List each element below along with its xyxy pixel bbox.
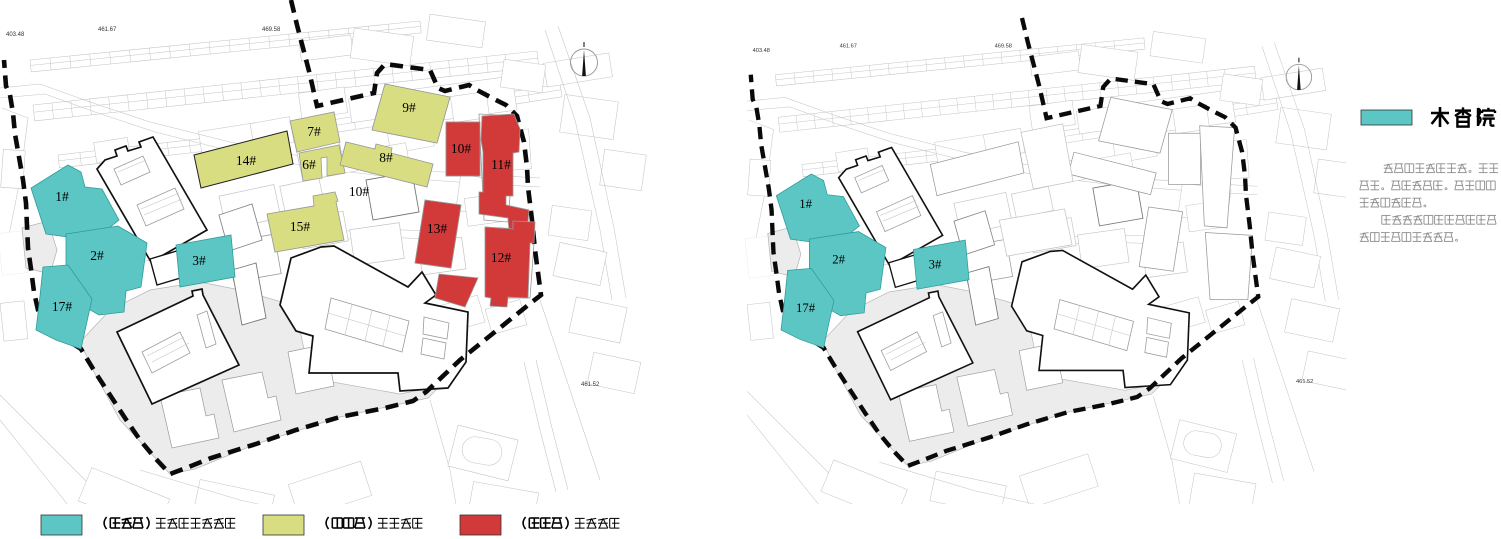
svg-text:461.52: 461.52 (1296, 379, 1313, 385)
svg-text:13#: 13# (427, 221, 448, 236)
svg-text:3#: 3# (192, 253, 206, 268)
svg-text:403.48: 403.48 (6, 32, 25, 38)
svg-text:14#: 14# (236, 153, 257, 168)
svg-text:461.67: 461.67 (98, 27, 117, 33)
svg-text:2#: 2# (90, 248, 104, 263)
svg-text:12#: 12# (491, 250, 512, 265)
svg-text:17#: 17# (52, 299, 73, 314)
svg-text:1#: 1# (799, 197, 812, 211)
svg-text:3#: 3# (929, 257, 942, 271)
svg-text:11#: 11# (491, 157, 511, 172)
svg-text:461.52: 461.52 (581, 382, 600, 388)
svg-text:9#: 9# (402, 100, 416, 115)
svg-text:8#: 8# (379, 150, 393, 165)
svg-text:2#: 2# (832, 253, 845, 267)
svg-text:469.58: 469.58 (262, 27, 281, 33)
svg-text:469.58: 469.58 (995, 43, 1012, 49)
svg-text:17#: 17# (796, 301, 816, 315)
svg-text:6#: 6# (302, 157, 316, 172)
svg-text:7#: 7# (307, 124, 321, 139)
svg-text:10#: 10# (451, 141, 472, 156)
svg-text:403.48: 403.48 (753, 48, 770, 54)
svg-text:10#: 10# (349, 184, 370, 199)
svg-text:1#: 1# (55, 189, 69, 204)
svg-text:461.67: 461.67 (840, 43, 857, 49)
svg-text:15#: 15# (290, 219, 311, 234)
